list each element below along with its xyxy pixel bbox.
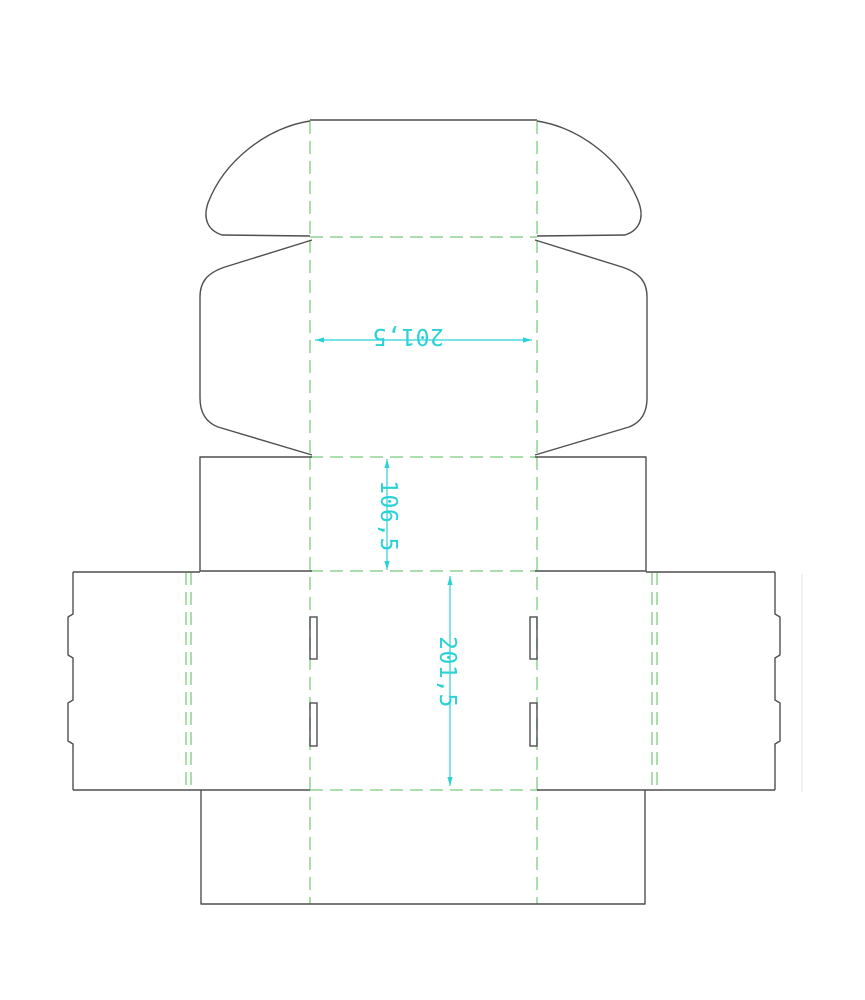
- cut-line: [68, 572, 73, 790]
- cut-line: [537, 121, 641, 236]
- base-depth-dimension-label: 201,5: [434, 636, 460, 708]
- dimension-arrowhead: [447, 576, 452, 585]
- dimension-arrowhead: [447, 777, 452, 786]
- dimension-annotations-layer: 201,5106,5201,5: [315, 323, 532, 786]
- lock-slit-cutout: [530, 617, 537, 659]
- cut-lines-layer: [68, 120, 780, 904]
- dimension-arrowhead: [523, 337, 532, 342]
- lock-slit-cutout: [530, 703, 537, 746]
- cut-line: [206, 121, 310, 236]
- cut-line: [200, 457, 312, 571]
- box-dieline-drawing: 201,5106,5201,5: [0, 0, 865, 1000]
- cut-line: [201, 790, 645, 904]
- lid-width-dimension-label: 201,5: [372, 323, 444, 349]
- cut-line: [535, 457, 646, 571]
- dimension-arrowhead: [384, 459, 389, 468]
- wall-height-dimension-label: 106,5: [375, 480, 401, 552]
- lock-slit-cutout: [310, 703, 317, 746]
- cut-line: [200, 240, 312, 455]
- fold-lines-layer: [186, 121, 657, 904]
- dimension-arrowhead: [315, 337, 324, 342]
- slit-cutouts-layer: [310, 617, 537, 746]
- dieline-canvas: 201,5106,5201,5: [0, 0, 865, 1000]
- cut-line: [535, 240, 647, 455]
- cut-line: [775, 572, 780, 790]
- lock-slit-cutout: [310, 617, 317, 659]
- dimension-arrowhead: [384, 561, 389, 570]
